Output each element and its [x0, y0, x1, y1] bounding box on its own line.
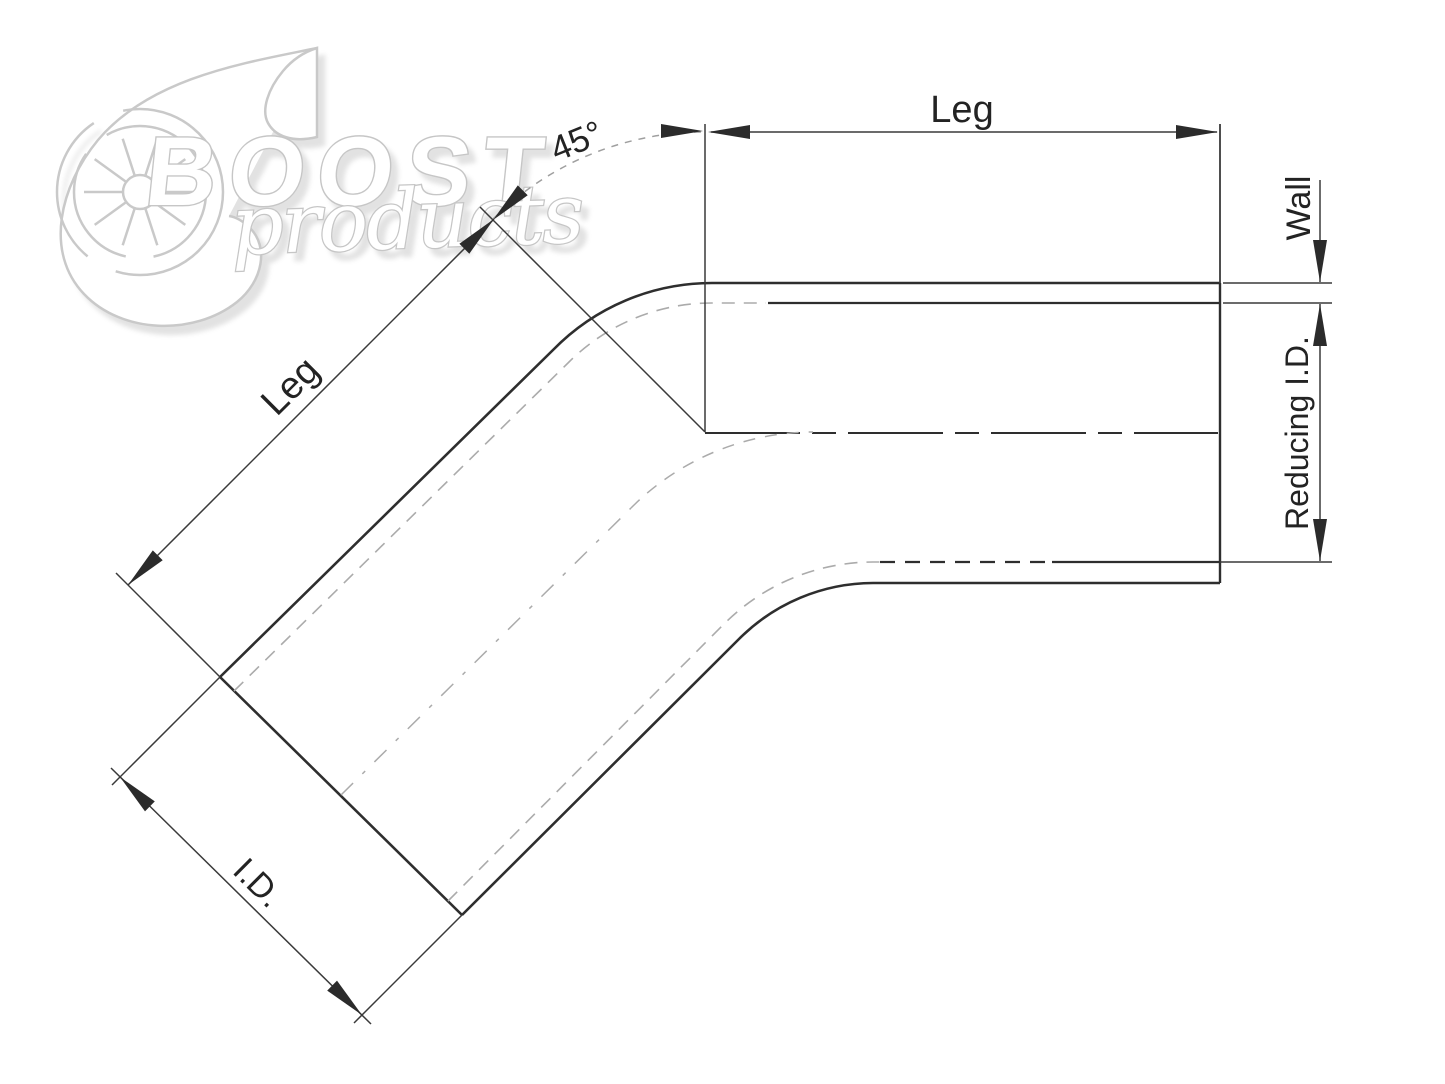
end-face-extension-line	[116, 573, 220, 677]
label-reducing-id: Reducing I.D.	[1279, 336, 1315, 530]
arrow-id-lower	[327, 981, 362, 1015]
id-dim-line	[111, 768, 371, 1024]
id-ext-line-2	[354, 915, 462, 1023]
arrowheads	[120, 124, 1327, 1015]
pipe-centerline-bend-arc	[631, 432, 813, 508]
arrow-leg-diagonal-lower	[128, 550, 163, 585]
arrow-wall-down	[1313, 240, 1327, 282]
arrow-leg-top-right	[1176, 125, 1218, 139]
leg-diagonal-dim-line	[128, 219, 494, 585]
id-ext-line-1	[112, 677, 220, 785]
pipe-centerline-diagonal	[341, 508, 631, 795]
arrow-wall-up	[1313, 304, 1327, 346]
drawing-canvas: BOOST products	[0, 0, 1445, 1084]
dimension-labels: Leg 45° Wall Reducing I.D. Leg I.D.	[226, 89, 1318, 915]
dimension-lines	[111, 124, 1332, 1024]
pipe-inner-top-hidden	[234, 303, 766, 691]
arrow-leg-diagonal-upper	[459, 219, 494, 254]
arrow-leg-top-left	[708, 125, 750, 139]
label-leg-diagonal: Leg	[253, 349, 328, 424]
vertex-extension-line	[480, 207, 705, 432]
label-wall: Wall	[1280, 176, 1318, 241]
label-leg-top: Leg	[930, 89, 993, 131]
pipe-hidden-edges	[234, 303, 882, 901]
pipe-outline	[220, 283, 1220, 915]
pipe-outer-bottom-edge	[462, 583, 1220, 915]
arrow-angle-arc-end	[661, 124, 703, 138]
arrow-angle-arc-start	[493, 185, 528, 220]
elbow-dimension-drawing: Leg 45° Wall Reducing I.D. Leg I.D.	[0, 0, 1445, 1084]
pipe-inner-bottom-hidden	[448, 562, 882, 901]
arrow-reducing-id-down	[1313, 519, 1327, 561]
arrow-id-upper	[120, 777, 155, 811]
label-angle-45: 45°	[545, 113, 609, 169]
label-id: I.D.	[226, 851, 290, 915]
